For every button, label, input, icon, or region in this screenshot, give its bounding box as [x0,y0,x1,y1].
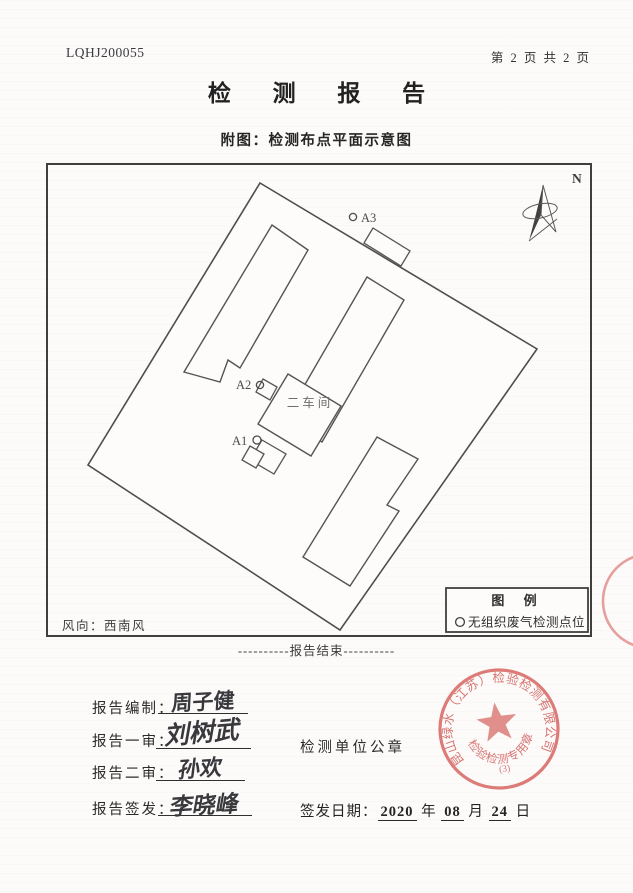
report-page: LQHJ200055 第 2 页 共 2 页 检 测 报 告 附图：检测布点平面… [0,0,633,893]
issue-date-day: 24 [489,804,512,821]
signature-line-issuer: 李晓峰 [158,781,252,816]
legend-item-label: 无组织废气检测点位 [468,615,585,630]
legend-box: 图 例 无组织废气检测点位 [446,588,588,632]
page-indicator: 第 2 页 共 2 页 [491,47,591,66]
issue-date-year: 2020 [378,804,417,821]
marker-a3-circle [349,213,356,220]
stamp-star-icon [474,700,519,743]
workshop-label: 二车间 [287,395,334,410]
issue-date-year-unit: 年 [421,804,437,820]
seal-caption: 检测单位公章 [300,736,405,757]
site-plan-svg: A3 A2 A1 二车间 N 图 例 无组织废气检测点位 [48,165,590,635]
signature-issuer: 李晓峰 [155,783,255,822]
marker-a1-label: A1 [232,434,247,448]
issue-date: 签发日期：2020 年 08 月 24 日 [300,800,531,821]
legend-title: 图 例 [491,593,544,608]
stamp-number: (3) [498,763,511,775]
stamp-ring [432,662,565,795]
stamp-company-arc-text: 昆山绿水（江苏）检验检测有限公司 [432,662,561,769]
compass-rose-icon: N [521,171,582,241]
issue-date-month-unit: 月 [468,804,484,820]
stamp-type-arc-text: 检验检测专用章 [464,729,540,771]
signature-line-review1: 刘树武 [156,714,251,749]
issue-date-month: 08 [441,804,464,821]
marker-a3-label: A3 [361,211,376,225]
issue-date-label: 签发日期： [300,804,378,820]
report-title: 检 测 报 告 [0,74,633,108]
figure-caption: 附图：检测布点平面示意图 [0,129,633,150]
partial-stamp-arc [603,554,633,648]
marker-a2-label: A2 [236,378,251,392]
site-plan-box: A3 A2 A1 二车间 N 图 例 无组织废气检测点位 [46,163,592,637]
report-number: LQHJ200055 [66,45,145,61]
wind-direction-label: 风向：西南风 [62,618,146,633]
north-label: N [572,171,582,186]
signature-line-review2: 孙欢 [156,746,245,781]
issue-date-day-unit: 日 [516,804,532,820]
compass-light-blade [541,185,556,232]
signature-line-author: 周子健 [158,679,248,714]
end-of-report-line: ----------报告结束---------- [0,640,633,659]
company-stamp: 昆山绿水（江苏）检验检测有限公司 检验检测专用章 (3) [432,662,566,796]
